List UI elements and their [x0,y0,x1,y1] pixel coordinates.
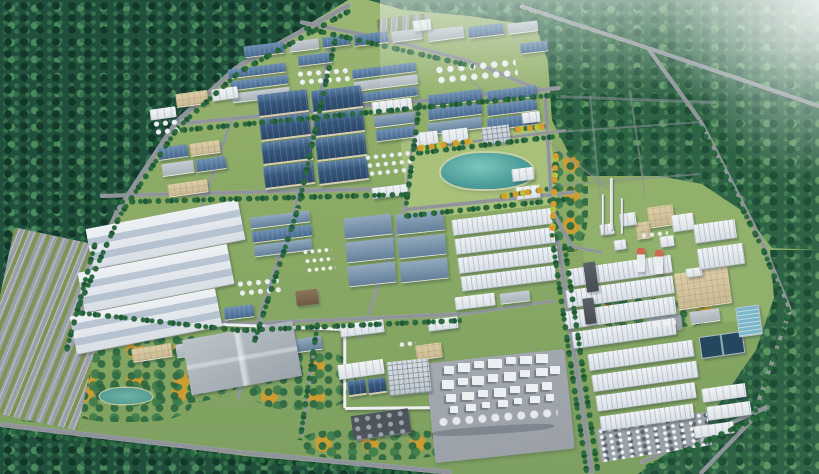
steel-roof-warehouse [347,262,397,288]
process-unit [474,361,484,368]
process-unit [442,380,454,389]
white-factory-building [454,293,495,311]
process-unit [488,374,498,382]
beige-industrial-building [189,140,221,157]
brown-roof-office [295,289,319,307]
process-unit [444,366,454,374]
process-unit [466,404,476,411]
treatment-basin-light [735,304,763,337]
process-unit [462,392,474,400]
industrial-park-aerial-render [0,0,819,474]
process-unit [472,376,484,385]
blue-roof-factory [195,156,227,173]
house-row [304,256,334,264]
white-factory-building [511,167,534,183]
solar-panel-warehouse [317,157,369,186]
process-unit [546,394,554,401]
process-unit [478,390,488,397]
white-factory-building [613,239,626,251]
process-unit [506,357,516,364]
process-unit [536,354,548,363]
process-unit [482,402,490,408]
process-unit [530,396,540,403]
process-unit [550,366,560,374]
smokestack [610,178,613,230]
process-unit [542,382,552,390]
process-unit [446,394,456,402]
silo-row [398,340,417,348]
blue-roof-factory [223,304,254,321]
process-unit [526,384,538,392]
process-unit [498,400,508,407]
process-unit [520,356,532,364]
solar-panel-warehouse [347,379,367,397]
house-row [306,265,336,273]
process-unit [520,370,530,377]
beige-industrial-building [674,266,733,310]
striped-chimney [655,250,663,274]
striped-chimney [637,248,645,272]
process-unit [504,372,516,381]
process-unit [494,388,506,397]
process-unit [536,368,548,376]
glass-roof-hall [386,358,431,396]
process-unit [510,386,520,393]
solar-panel-warehouse [367,377,387,395]
process-unit [488,359,502,368]
steel-roof-warehouse [397,234,447,260]
process-unit [458,378,468,385]
smokestack [621,198,623,234]
white-factory-building [671,213,695,233]
atmospheric-haze [640,0,819,210]
smokestack [602,194,604,234]
process-unit [514,398,522,404]
white-factory-building [659,235,674,248]
steel-roof-warehouse [343,214,393,240]
gray-roof-building [161,160,194,177]
steel-roof-warehouse [399,258,449,284]
process-unit [450,406,458,413]
process-unit [458,363,470,372]
pond [100,388,152,404]
